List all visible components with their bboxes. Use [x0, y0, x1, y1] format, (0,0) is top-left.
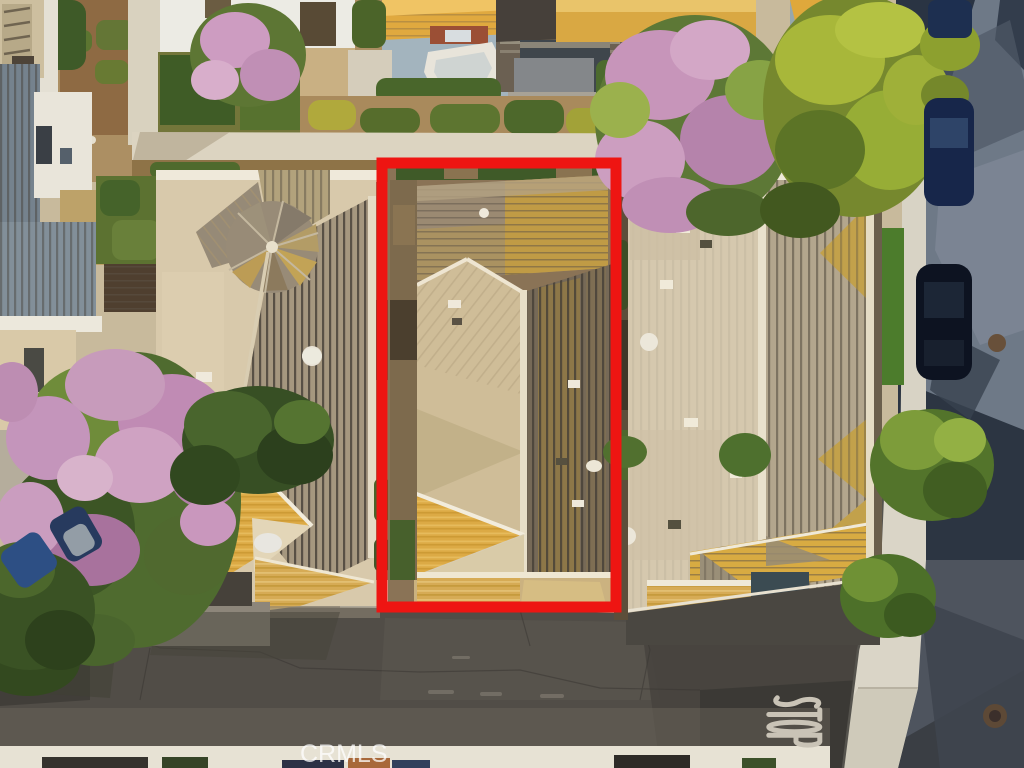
svg-text:CRMLS: CRMLS: [300, 740, 388, 768]
